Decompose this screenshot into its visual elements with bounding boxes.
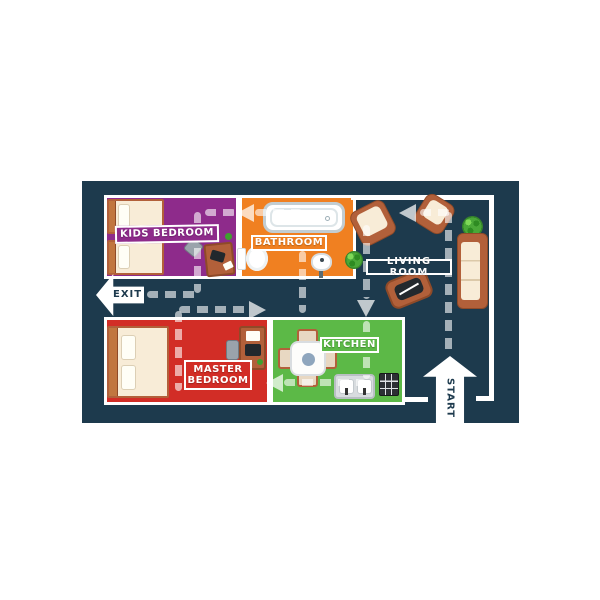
- small-plant-icon: [225, 233, 232, 240]
- bed-pillow: [121, 365, 136, 390]
- wall-right: [489, 195, 494, 401]
- floor-plan-illustration: KIDS BEDROOM BATHROOM LIVING ROOM MASTER…: [0, 0, 600, 600]
- route-segment: [445, 212, 452, 356]
- bathroom-sink-icon: [311, 253, 332, 271]
- bed-pillow: [118, 204, 130, 228]
- bed-headboard: [109, 242, 116, 273]
- wall-bottom-right-stub: [476, 396, 494, 401]
- bathtub-icon: [263, 202, 345, 233]
- table-centerpiece: [302, 353, 315, 366]
- bathtub-drain: [325, 216, 330, 221]
- faucet-icon: [345, 388, 348, 395]
- route-segment: [284, 379, 366, 386]
- kids-bedroom-label: KIDS BEDROOM: [115, 224, 219, 244]
- route-segment: [147, 291, 198, 298]
- notebook-icon: [223, 261, 234, 271]
- route-segment: [179, 306, 249, 313]
- kids-bed-icon: [107, 240, 164, 275]
- stove-icon: [379, 373, 399, 396]
- route-arrow-right-icon: [249, 301, 266, 319]
- master-bed-icon: [107, 326, 169, 398]
- bed-pillow: [118, 245, 130, 269]
- start-label: START: [445, 378, 456, 418]
- route-arrow-left-icon: [237, 204, 254, 222]
- route-arrow-left-icon: [266, 374, 283, 392]
- master-bedroom-label: MASTER BEDROOM: [184, 360, 252, 390]
- route-segment: [255, 209, 302, 216]
- laptop-icon: [245, 344, 261, 356]
- route-arrow-down-icon: [357, 300, 375, 317]
- sofa-cushions: [461, 242, 480, 300]
- bed-pillow: [121, 335, 136, 360]
- exit-label: EXIT: [113, 289, 142, 300]
- kitchen-label: KITCHEN: [320, 337, 379, 353]
- desk-chair-icon: [226, 340, 239, 360]
- faucet-icon: [363, 388, 366, 395]
- living-room-label: LIVING ROOM: [366, 259, 452, 275]
- bed-headboard: [109, 328, 118, 396]
- route-arrow-left-icon: [399, 204, 416, 222]
- route-segment: [175, 311, 182, 391]
- faucet-icon: [320, 258, 324, 262]
- small-plant-icon: [257, 359, 263, 365]
- sofa-icon: [457, 233, 488, 309]
- bathroom-label: BATHROOM: [251, 235, 327, 251]
- kids-desk-icon: [203, 242, 235, 278]
- plant-icon: [345, 251, 363, 269]
- route-segment: [299, 251, 306, 313]
- wall-top-living: [351, 195, 494, 200]
- wall-bottom-mid: [402, 397, 428, 402]
- laptop-icon: [210, 249, 226, 262]
- route-segment: [205, 209, 236, 216]
- paper-icon: [246, 331, 260, 341]
- toilet-tank: [237, 248, 246, 270]
